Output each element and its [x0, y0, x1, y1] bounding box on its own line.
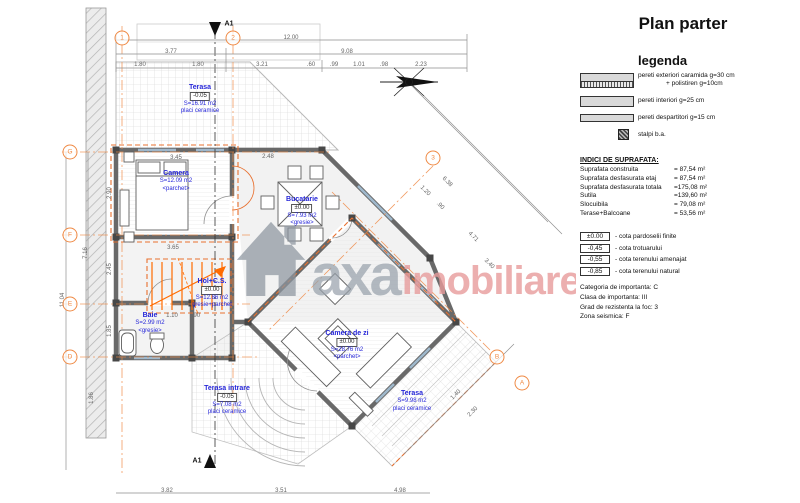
room-label-terasa-intrare: Terasa intrare-0.05S=7.08 m2placi cerami…	[204, 385, 250, 417]
dim-label: 1.01	[353, 62, 365, 68]
room-label-camera: CameraS=12.09 m2<parchet>	[160, 170, 193, 193]
room-label-camera-de-zi: Camera de zi±0.00S=28.76 m2<parchet>	[325, 330, 368, 362]
axis-bubble-e: E	[63, 297, 78, 312]
section-label: A1	[225, 21, 234, 28]
surface-row: Suprafata desfasurata etaj= 87,54 m²	[580, 175, 707, 184]
surface-row: Sutila=139,60 m²	[580, 192, 707, 201]
legend-item-label: stalpi b.a.	[638, 131, 666, 139]
classification-line: Categoria de importanta: C	[580, 283, 658, 293]
dim-label: .98	[380, 62, 388, 68]
axis-bubble-g: G	[63, 145, 78, 160]
room-label-hol-c-s-: Hol+C.S.±0.00S=12.86 m2gresie+parchet	[192, 278, 232, 310]
info-panel: Plan parter legenda pereti exteriori car…	[576, 0, 800, 503]
dim-label: 3.77	[165, 49, 177, 55]
room-label-terasa: TerasaS=9.98 m2placi ceramice	[393, 390, 431, 413]
dim-label: .90	[192, 313, 200, 319]
axis-bubble-3: 3	[426, 151, 441, 166]
surface-row: Slocuibila= 79,08 m²	[580, 201, 707, 210]
dim-label: 3.21	[256, 62, 268, 68]
building-classification: Categoria de importanta: C Clasa de impo…	[580, 283, 658, 322]
dim-label: .90	[435, 201, 445, 211]
dim-label: 2.30	[467, 406, 480, 419]
classification-line: Zona seismica: F	[580, 312, 658, 322]
legend-item-partition-walls: pereti despartitori g=15 cm	[580, 114, 798, 122]
floor-plan-page: axa imobiliare Terasa-0.05S=16.91 m2plac…	[0, 0, 800, 503]
axis-bubble-1: 1	[115, 31, 130, 46]
dim-label: 1.10	[166, 313, 178, 319]
room-label-terasa: Terasa-0.05S=16.91 m2placi ceramice	[181, 84, 219, 116]
dim-label: 3.51	[275, 488, 287, 494]
dim-label: 12.00	[283, 35, 298, 41]
elevation-row: -0,85- cota terenului natural	[580, 267, 687, 276]
legend-heading: legenda	[638, 53, 687, 68]
axis-bubble-d: D	[63, 350, 78, 365]
elevation-notes: ±0.00- cota pardoselii finite -0,45- cot…	[580, 232, 687, 278]
plan-annotations: Terasa-0.05S=16.91 m2placi ceramiceCamer…	[0, 0, 576, 503]
section-label: A1	[193, 458, 202, 465]
legend-item-label: pereti interiori g=25 cm	[638, 97, 704, 105]
interior-wall-swatch	[580, 96, 634, 107]
dim-label: 6.38	[441, 176, 454, 189]
legend-item-interior-walls: pereti interiori g=25 cm	[580, 96, 798, 107]
dim-label: 2.45	[107, 263, 113, 275]
dim-label: 3.65	[167, 245, 179, 251]
legend-item-exterior-walls: pereti exteriori caramida g=30 cm + poli…	[580, 72, 798, 89]
dim-label: 4.98	[394, 488, 406, 494]
dim-label: 3.45	[170, 155, 182, 161]
legend-item-columns: stalpi b.a.	[580, 129, 798, 140]
legend-item-label: pereti exteriori caramida g=30 cm + poli…	[638, 72, 735, 89]
dim-label: 2.48	[262, 154, 274, 160]
axis-bubble-b: B	[490, 350, 505, 365]
surface-row: Suprafata desfasurata totala=175,08 m²	[580, 184, 707, 193]
page-title: Plan parter	[576, 14, 790, 34]
legend: pereti exteriori caramida g=30 cm + poli…	[580, 72, 798, 147]
surface-row: Suprafata construita= 87,54 m²	[580, 166, 707, 175]
dim-label: .99	[330, 62, 338, 68]
dim-label: 1.20	[419, 185, 432, 198]
surface-row: Terase+Balcoane= 53,56 m²	[580, 210, 707, 219]
axis-bubble-2: 2	[226, 31, 241, 46]
room-label-baie: BaieS=2.99 m2<gresie>	[135, 312, 164, 335]
exterior-wall-swatch	[580, 73, 634, 88]
dim-label: 7.16	[83, 247, 89, 259]
surface-indices: INDICI DE SUPRAFATA: Suprafata construit…	[580, 157, 707, 219]
surface-indices-heading: INDICI DE SUPRAFATA:	[580, 157, 707, 164]
legend-item-label: pereti despartitori g=15 cm	[638, 114, 715, 122]
classification-line: Clasa de importanta: III	[580, 293, 658, 303]
axis-bubble-f: F	[63, 228, 78, 243]
dim-label: 2.23	[415, 62, 427, 68]
dim-label: 9.08	[341, 49, 353, 55]
partition-wall-swatch	[580, 114, 634, 122]
concrete-column-swatch	[618, 129, 629, 140]
elevation-row: -0,45- cota trotuarului	[580, 244, 687, 253]
dim-label: 1.80	[192, 62, 204, 68]
axis-bubble-a: A	[515, 376, 530, 391]
dim-label: 1.86	[89, 392, 95, 404]
dim-label: .60	[307, 62, 315, 68]
classification-line: Grad de rezistenta la foc: 3	[580, 303, 658, 313]
room-label-bucatarie: Bucatarie±0.00S=7.93 m2<gresie>	[286, 196, 318, 228]
dim-label: 4.71	[467, 231, 480, 244]
dim-label: 3.82	[161, 488, 173, 494]
elevation-row: -0,55- cota terenului amenajat	[580, 255, 687, 264]
dim-label: 1.40	[450, 389, 463, 402]
dim-label: 1.80	[134, 62, 146, 68]
dim-label: 3.40	[483, 258, 496, 271]
elevation-row: ±0.00- cota pardoselii finite	[580, 232, 687, 241]
dim-label: 1.85	[107, 325, 113, 337]
dim-label: 2.90	[107, 187, 113, 199]
